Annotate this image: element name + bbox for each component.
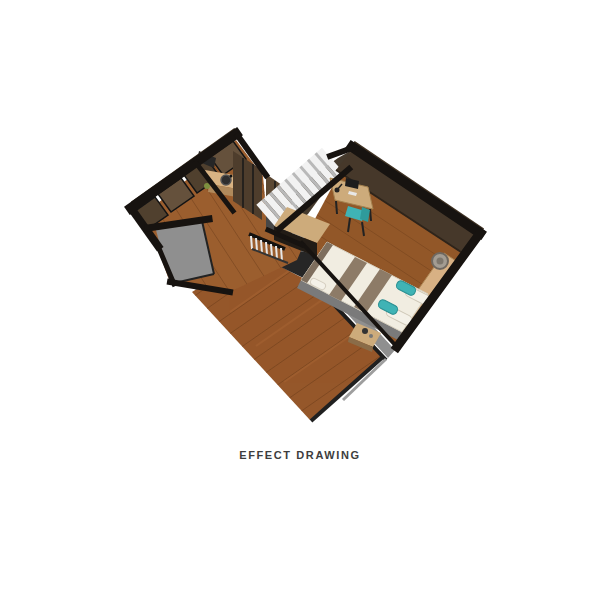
desk-leg <box>370 209 371 221</box>
cup-icon <box>369 334 373 338</box>
floor-plan-render <box>0 0 600 600</box>
desk-leg <box>336 201 337 214</box>
sink-icon <box>221 175 231 185</box>
drawing-title: EFFECT DRAWING <box>0 449 600 461</box>
faucet-icon <box>230 175 233 178</box>
basket-inner <box>437 258 444 265</box>
bottle-icon <box>362 328 368 334</box>
effect-drawing-page: EFFECT DRAWING <box>0 0 600 600</box>
